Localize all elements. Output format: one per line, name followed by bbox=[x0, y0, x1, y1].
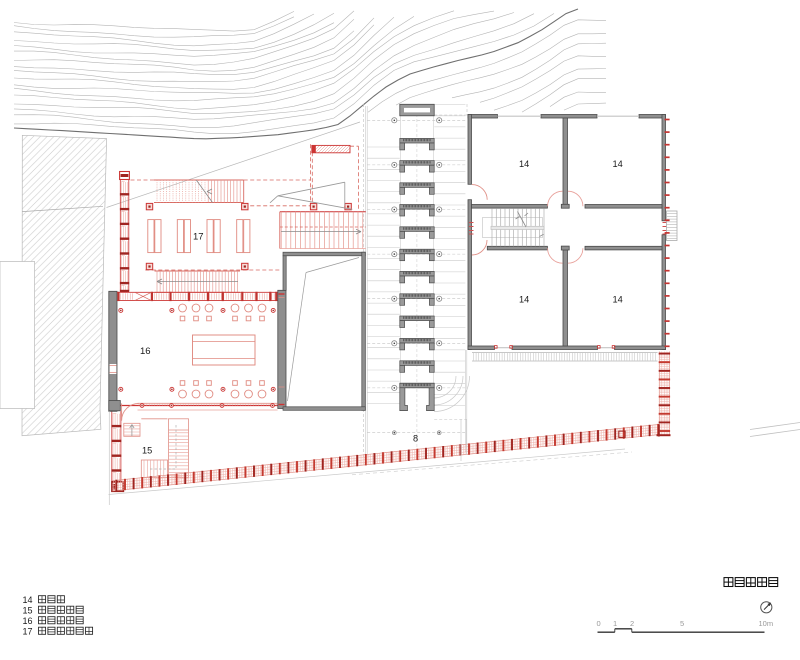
svg-text:2: 2 bbox=[630, 619, 634, 628]
svg-text:14: 14 bbox=[613, 159, 623, 169]
svg-text:0: 0 bbox=[597, 619, 601, 628]
svg-text:14: 14 bbox=[23, 595, 33, 605]
svg-text:14: 14 bbox=[519, 159, 529, 169]
svg-text:5: 5 bbox=[680, 619, 684, 628]
svg-text:16: 16 bbox=[23, 616, 33, 626]
svg-text:16: 16 bbox=[140, 346, 151, 357]
svg-text:8: 8 bbox=[413, 434, 418, 444]
svg-text:1: 1 bbox=[613, 619, 617, 628]
svg-text:15: 15 bbox=[142, 446, 152, 456]
svg-text:14: 14 bbox=[613, 295, 623, 305]
svg-text:17: 17 bbox=[23, 626, 33, 636]
svg-text:10m: 10m bbox=[759, 619, 774, 628]
svg-text:14: 14 bbox=[519, 295, 529, 305]
svg-text:15: 15 bbox=[23, 605, 33, 615]
svg-text:17: 17 bbox=[193, 232, 204, 243]
